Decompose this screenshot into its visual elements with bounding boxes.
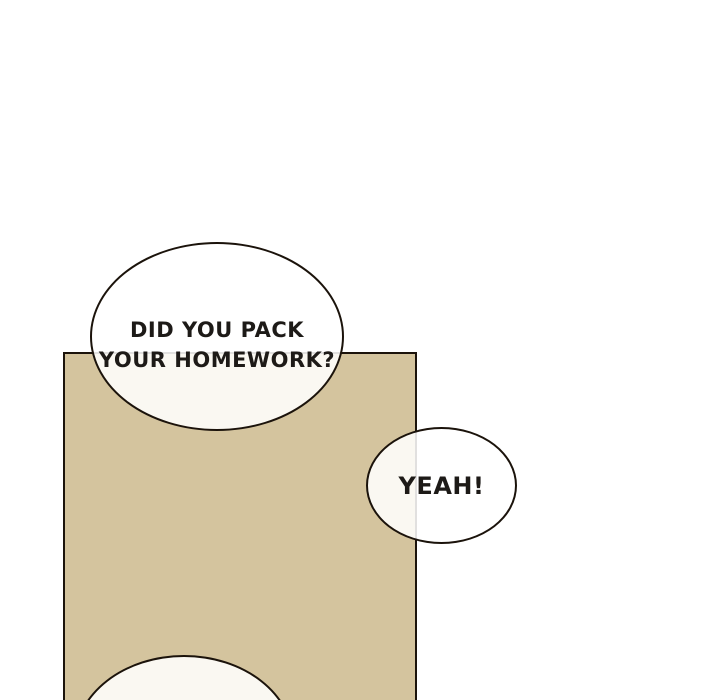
comic-page: DID YOU PACK YOUR HOMEWORK? YEAH! [0, 0, 720, 700]
speech-bubble-question: DID YOU PACK YOUR HOMEWORK? [90, 242, 344, 431]
speech-bubble-answer: YEAH! [366, 427, 517, 544]
question-line-2: YOUR HOMEWORK? [99, 345, 335, 375]
question-line-1: DID YOU PACK [99, 315, 335, 345]
speech-bubble-answer-text: YEAH! [399, 472, 485, 500]
speech-bubble-question-text: DID YOU PACK YOUR HOMEWORK? [99, 315, 335, 375]
